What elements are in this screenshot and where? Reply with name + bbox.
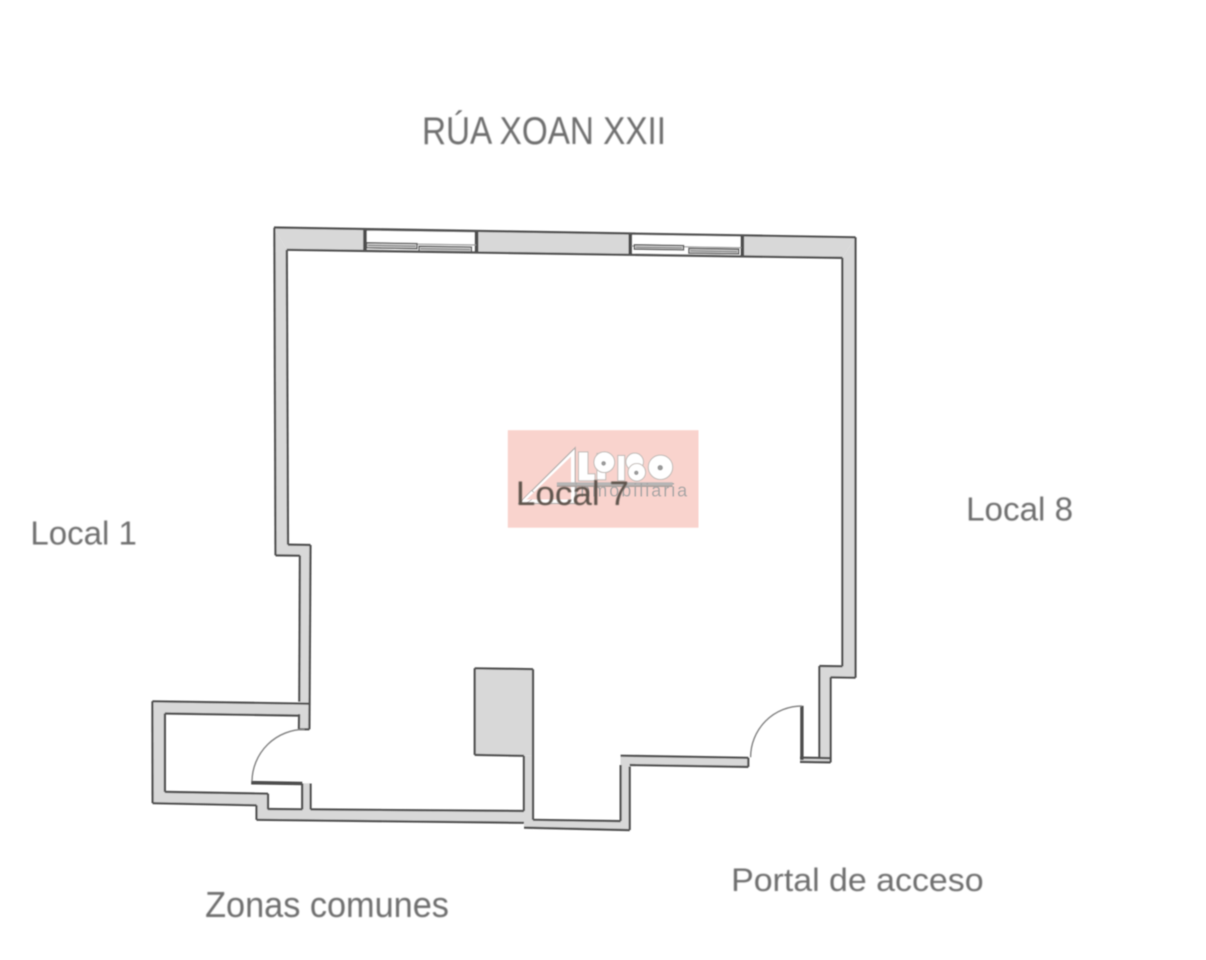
svg-text:RÚA XOAN XXII: RÚA XOAN XXII xyxy=(422,110,666,153)
svg-text:Local 8: Local 8 xyxy=(966,491,1073,528)
svg-text:Local 7: Local 7 xyxy=(516,475,629,513)
svg-text:Zonas comunes: Zonas comunes xyxy=(205,884,449,925)
svg-text:Portal de acceso: Portal de acceso xyxy=(731,862,984,898)
svg-text:Local 1: Local 1 xyxy=(30,515,136,552)
